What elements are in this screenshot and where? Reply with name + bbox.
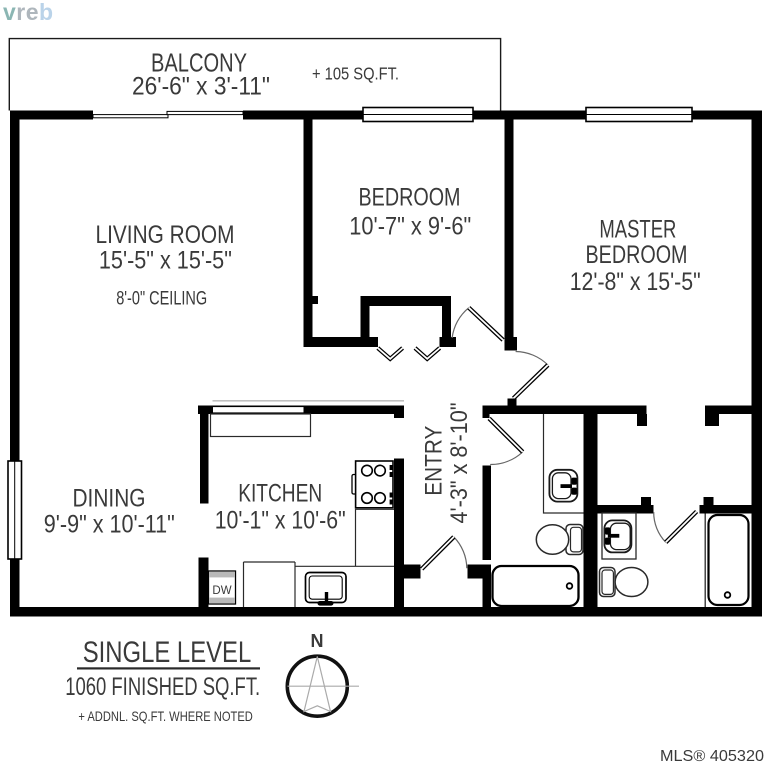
svg-text:N: N (311, 631, 324, 651)
svg-text:1060 FINISHED SQ.FT.: 1060 FINISHED SQ.FT. (65, 673, 260, 701)
svg-text:DINING: DINING (73, 485, 146, 513)
svg-text:12'-8" x 15'-5": 12'-8" x 15'-5" (570, 268, 701, 296)
svg-text:9'-9" x 10'-11": 9'-9" x 10'-11" (44, 511, 175, 539)
svg-text:KITCHEN: KITCHEN (238, 480, 322, 508)
svg-text:BEDROOM: BEDROOM (586, 241, 688, 269)
svg-text:vreb: vreb (3, 0, 54, 25)
svg-text:+ ADDNL. SQ.FT. WHERE NOTED: + ADDNL. SQ.FT. WHERE NOTED (78, 708, 253, 724)
svg-text:BEDROOM: BEDROOM (359, 184, 461, 212)
svg-text:DW: DW (212, 585, 231, 597)
svg-text:MLS® 405320: MLS® 405320 (660, 748, 764, 765)
svg-text:ENTRY: ENTRY (421, 426, 448, 496)
svg-text:MASTER: MASTER (599, 216, 676, 244)
svg-text:SINGLE LEVEL: SINGLE LEVEL (83, 636, 252, 669)
svg-text:4'-3" x 8'-10": 4'-3" x 8'-10" (446, 403, 473, 524)
svg-text:+ 105 SQ.FT.: + 105 SQ.FT. (312, 64, 399, 84)
svg-text:LIVING ROOM: LIVING ROOM (96, 221, 235, 249)
svg-text:8'-0" CEILING: 8'-0" CEILING (116, 288, 207, 310)
svg-text:26'-6" x 3'-11": 26'-6" x 3'-11" (132, 73, 270, 101)
svg-text:10'-7" x 9'-6": 10'-7" x 9'-6" (349, 213, 471, 241)
svg-text:15'-5" x 15'-5": 15'-5" x 15'-5" (99, 247, 232, 275)
svg-text:10'-1" x 10'-6": 10'-1" x 10'-6" (215, 507, 346, 535)
